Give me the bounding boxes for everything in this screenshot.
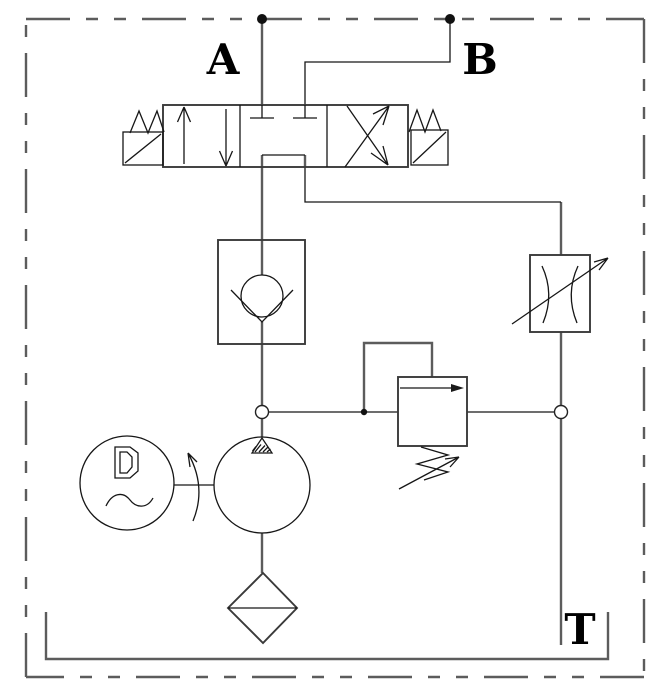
pump-circle <box>214 437 310 533</box>
secondary-pipes <box>174 19 561 485</box>
reservoir-tank <box>46 612 608 659</box>
right-spring-icon <box>409 110 441 132</box>
variable-throttle-valve <box>512 255 608 332</box>
check-valve-ball <box>241 275 283 317</box>
hydraulic-pump <box>214 437 310 533</box>
junction-pump-outlet <box>256 406 269 419</box>
port-b-line <box>305 19 450 105</box>
main-pipes <box>262 19 561 645</box>
port-b-dot <box>445 14 455 24</box>
port-a-dot <box>257 14 267 24</box>
schematic-canvas: A B T <box>0 0 672 692</box>
right-solenoid-with-spring <box>409 110 448 165</box>
motor-circle <box>80 436 174 530</box>
valve-left-up-arrow <box>178 107 191 164</box>
valve-tank-branch <box>305 167 561 202</box>
right-solenoid-diagonal <box>413 132 446 163</box>
hydraulic-schematic: A B T <box>0 0 672 692</box>
left-spring-icon <box>130 111 164 133</box>
motor-rotation-arrow <box>188 453 199 521</box>
throttle-restriction-right <box>571 266 578 323</box>
valve-centre-blocked-b <box>293 105 317 118</box>
relief-spring-icon <box>417 447 448 480</box>
pilot-branch-dot <box>361 409 367 415</box>
valve-left-down-arrow <box>220 109 233 166</box>
port-a-label: A <box>206 35 241 84</box>
left-solenoid-with-spring <box>123 111 164 165</box>
motor-letter-d <box>115 447 138 478</box>
throttle-restriction-left <box>542 266 549 323</box>
relief-flow-arrowhead <box>451 384 464 392</box>
pressure-relief-valve <box>398 377 467 489</box>
junction-return-line <box>555 406 568 419</box>
port-b-label: B <box>462 35 498 84</box>
valve-centre-blocked-a <box>250 105 274 118</box>
solenoid-directional-valve-4-3 <box>123 105 448 167</box>
left-solenoid-diagonal <box>125 134 161 163</box>
enclosure-boundary <box>26 19 644 677</box>
throttle-adjust-arrow <box>512 258 608 324</box>
tank-label: T <box>564 605 595 654</box>
relief-spring-adjust-arrow <box>399 457 459 489</box>
valve-body <box>163 105 408 167</box>
electric-motor-ac <box>80 436 199 530</box>
throttle-box <box>530 255 590 332</box>
motor-ac-tilde-icon <box>106 494 153 506</box>
suction-filter <box>228 573 297 643</box>
